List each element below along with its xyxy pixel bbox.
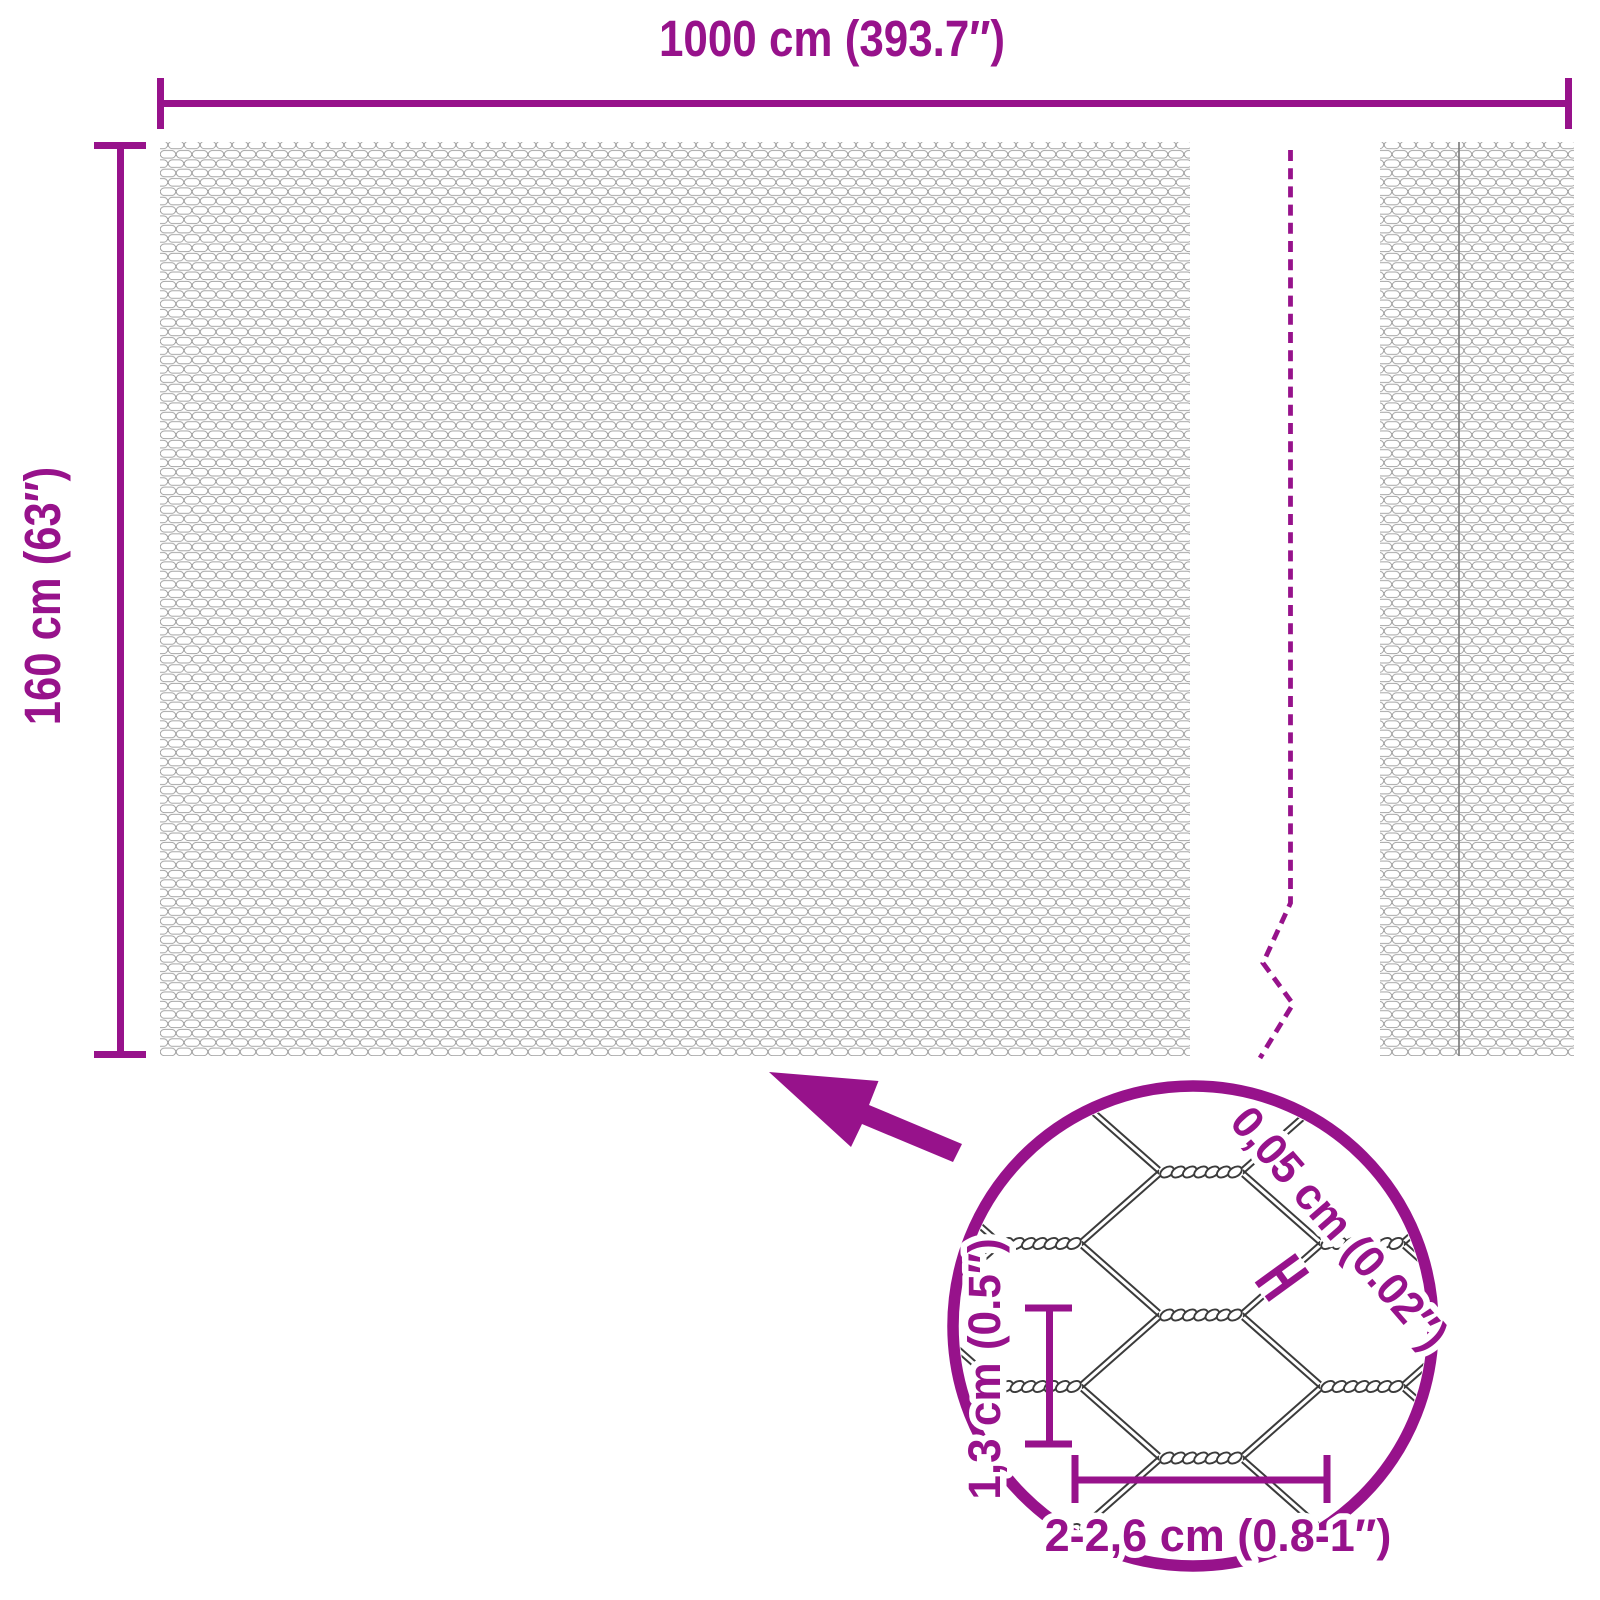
- svg-text:160 cm (63″): 160 cm (63″): [15, 467, 72, 725]
- svg-text:1000 cm (393.7″): 1000 cm (393.7″): [659, 11, 1005, 68]
- svg-text:2-2,6 cm (0.8-1″): 2-2,6 cm (0.8-1″): [1045, 1510, 1392, 1561]
- svg-text:1,3 cm (0.5″): 1,3 cm (0.5″): [961, 1238, 1010, 1499]
